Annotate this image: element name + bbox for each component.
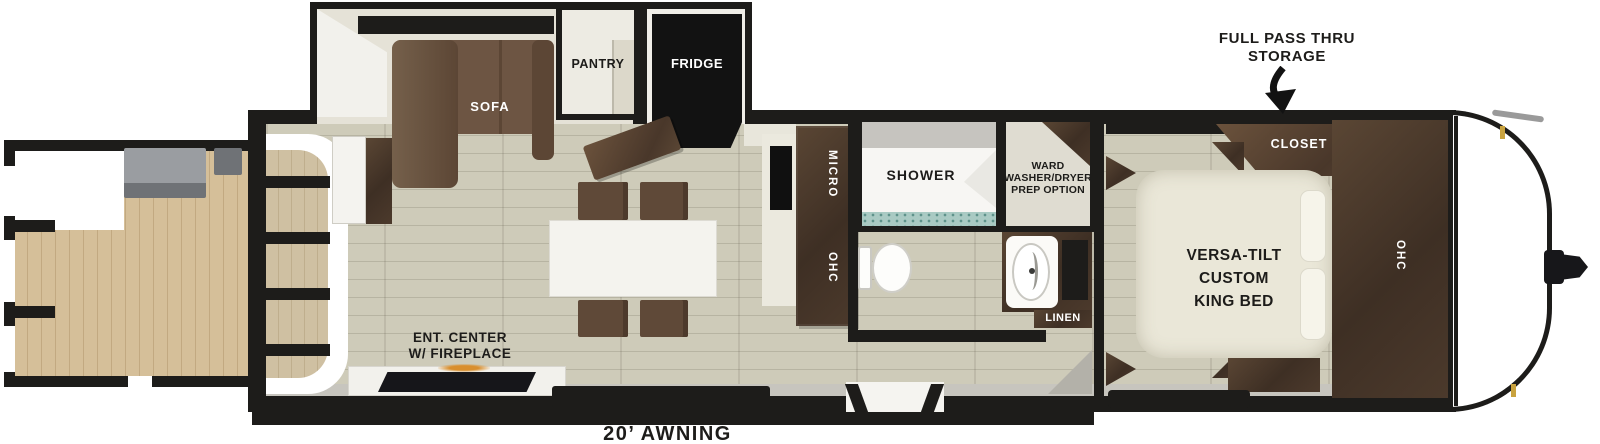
deck-open-corner xyxy=(14,150,124,230)
rv-floorplan: PANTRY FRIDGE SOFA MICRO OHC ENT. CENTER… xyxy=(0,0,1600,444)
awning-label: 20’ AWNING xyxy=(560,423,775,444)
cap-seam xyxy=(1454,116,1458,406)
deck-rail-gap-1 xyxy=(4,166,15,216)
bed-foot-bench xyxy=(1228,358,1320,392)
sink-window xyxy=(1062,240,1088,300)
wall-rear xyxy=(248,110,266,412)
shower-label: SHOWER xyxy=(856,167,986,183)
deck-rail-bottom xyxy=(4,376,250,387)
linen-label: LINEN xyxy=(1034,312,1092,324)
ent-center-label: ENT. CENTER W/ FIREPLACE xyxy=(380,330,540,362)
dinette-chair-3 xyxy=(578,300,628,337)
kitchen-window xyxy=(552,386,770,408)
sofa-label: SOFA xyxy=(430,99,550,114)
rear-wardrobe xyxy=(366,138,392,224)
pantry-shelves xyxy=(612,40,634,114)
hitch-tongue xyxy=(1560,254,1588,280)
dinette-chair-1 xyxy=(578,182,628,220)
deck-rail-gap-3 xyxy=(4,326,15,372)
shower-tile-strip xyxy=(862,212,996,226)
sink-drain xyxy=(1029,268,1035,274)
fridge-label: FRIDGE xyxy=(652,56,742,71)
toilet-tank xyxy=(858,246,872,290)
deck-rail-rung-1 xyxy=(15,220,55,232)
rear-step-2 xyxy=(266,232,330,244)
fireplace-glow xyxy=(438,364,490,372)
tv xyxy=(770,146,792,210)
deck-rail-gap-2 xyxy=(4,240,15,302)
shower-back-wall xyxy=(862,122,996,148)
marker-light-bottom xyxy=(1511,384,1516,397)
micro-label: MICRO xyxy=(814,150,838,222)
pantry-label: PANTRY xyxy=(556,57,640,71)
ohc-bedroom-label: OHC xyxy=(1384,240,1406,304)
deck-gate-gap xyxy=(128,376,152,387)
toilet-bowl xyxy=(872,243,912,293)
bath-bottom-wall xyxy=(848,330,1046,342)
ward-label: WARD WASHER/DRYER PREP OPTION xyxy=(986,160,1110,196)
rear-step-3 xyxy=(266,288,330,300)
rear-wardrobe-panel xyxy=(332,136,366,224)
bedroom-window xyxy=(1108,390,1250,408)
cap-chrome-trim xyxy=(1492,109,1544,122)
pass-thru-arrow-icon xyxy=(1255,66,1315,116)
dinette-table xyxy=(549,220,717,297)
dinette-chair-2 xyxy=(640,182,688,220)
rear-step-4 xyxy=(266,344,330,356)
deck-bench xyxy=(124,148,206,198)
bath-bedroom-divider xyxy=(1094,116,1104,408)
ohc-kitchen-label: OHC xyxy=(814,252,838,310)
bed-label: VERSA-TILT CUSTOM KING BED xyxy=(1136,244,1332,313)
pass-thru-storage-label: FULL PASS THRU STORAGE xyxy=(1187,30,1387,66)
marker-light-top xyxy=(1500,126,1505,139)
slideout-window xyxy=(358,16,554,34)
sofa-chaise xyxy=(392,40,458,188)
rear-step-1 xyxy=(266,176,330,188)
dinette-chair-4 xyxy=(640,300,688,337)
front-cap xyxy=(1448,110,1552,412)
ent-center-tv xyxy=(378,372,536,392)
deck-grill xyxy=(214,148,242,175)
deck-rail-rung-2 xyxy=(15,306,55,318)
